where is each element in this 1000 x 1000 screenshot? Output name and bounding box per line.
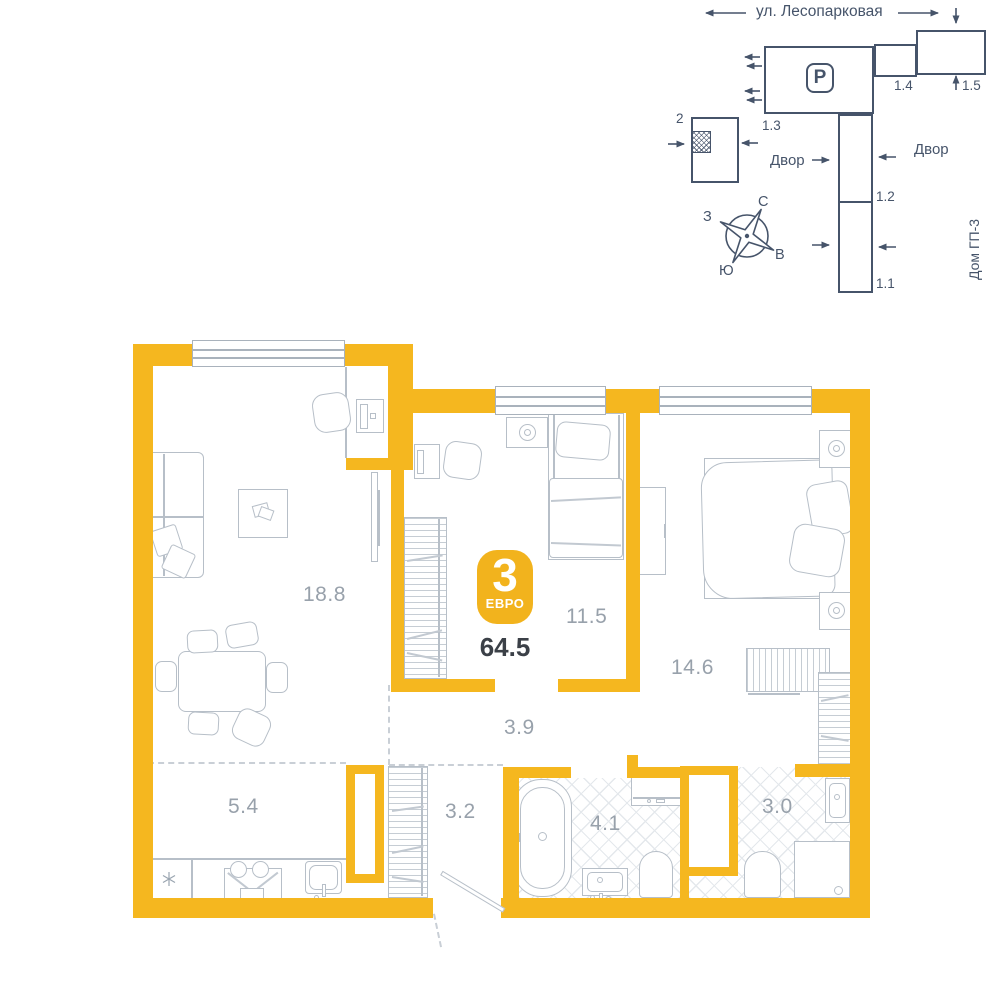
tv-panel [371, 472, 378, 562]
fridge-snowflake-icon [162, 872, 176, 886]
kitchen-faucet [322, 884, 326, 897]
wc-sink-bowl [829, 783, 846, 818]
pillow [787, 522, 847, 579]
room-label-bedroom1: 11.5 [566, 605, 607, 629]
window [659, 386, 812, 415]
wall [795, 764, 852, 777]
bathtub-drain [538, 832, 547, 841]
wall [133, 344, 153, 918]
tv-mount-line [378, 490, 380, 546]
shower-drain [834, 886, 843, 895]
wall [133, 898, 433, 918]
room-label-living: 18.8 [303, 583, 346, 607]
corridor-zone-dashed-line [388, 685, 390, 765]
toilet [639, 851, 673, 898]
lamp-icon [833, 445, 840, 452]
dining-chair [187, 711, 219, 736]
dining-chair [155, 661, 177, 692]
window-glass-line [660, 405, 811, 407]
apartment-area-value: 64.5 [474, 632, 536, 663]
stove-burner [252, 861, 269, 878]
dresser-handle [664, 524, 666, 538]
pillow [555, 421, 612, 462]
minimap-graphics [660, 0, 1000, 300]
dining-table [178, 651, 266, 712]
floorplan-page: 18.8 11.5 14.6 3.9 5.4 3.2 4.1 3.0 3 ЕВР… [0, 0, 1000, 1000]
wall [391, 470, 404, 691]
wall [501, 898, 870, 918]
blanket [549, 478, 623, 558]
bathroom-sink-bowl [587, 872, 623, 892]
dresser [639, 487, 666, 575]
badge-type-label: ЕВРО [477, 596, 533, 611]
wardrobe-bedroom2-side [818, 672, 852, 765]
kitchen-counter-divider [191, 858, 193, 898]
sink-drain [597, 877, 603, 883]
monitor [417, 450, 424, 474]
lamp-icon [524, 429, 531, 436]
room-label-kitchen: 5.4 [228, 795, 259, 819]
washing-machine-knob [647, 799, 651, 803]
room-label-bath: 4.1 [590, 812, 621, 836]
window [192, 340, 345, 367]
washing-machine-controls [656, 799, 665, 803]
desk-item [370, 413, 376, 419]
wall [391, 679, 495, 692]
wall [503, 767, 519, 898]
sofa-seat-line [147, 516, 203, 518]
room-label-hall: 3.2 [445, 800, 476, 824]
compass-icon [721, 210, 774, 263]
wall [627, 755, 638, 767]
toilet [744, 851, 781, 898]
wall [850, 389, 870, 918]
wardrobe-bench-line [748, 693, 800, 695]
window-glass-line [496, 405, 605, 407]
monitor [360, 404, 368, 429]
wall [503, 767, 571, 778]
window [495, 386, 606, 415]
room-label-bedroom2: 14.6 [671, 656, 714, 680]
entrance-door-leaf [440, 871, 505, 913]
room-label-corridor: 3.9 [504, 716, 535, 740]
dining-chair [266, 662, 288, 693]
window-glass-line [660, 396, 811, 398]
kitchen-zone-dashed-line [148, 762, 346, 764]
wall [558, 679, 636, 692]
dining-chair [186, 629, 218, 654]
window-glass-line [193, 349, 344, 351]
entrance-door-swing [433, 914, 442, 948]
lamp-icon [833, 607, 840, 614]
window-glass-line [496, 396, 605, 398]
window-glass-line [193, 357, 344, 359]
sink-drain [834, 794, 840, 800]
kitchen-counter-line [146, 858, 348, 860]
wall [626, 413, 640, 681]
kitchen-door-leaf [346, 765, 384, 883]
desk-chair [442, 440, 484, 482]
dining-chair [224, 620, 260, 649]
wall [346, 458, 392, 470]
utility-shaft [680, 766, 738, 876]
room-label-wc: 3.0 [762, 795, 793, 819]
wardrobe-rail-line [438, 519, 440, 677]
wardrobe-bedroom1 [404, 517, 447, 679]
desk-chair [310, 391, 352, 435]
apartment-badge: 3 ЕВРО [477, 550, 533, 624]
badge-rooms-count: 3 [477, 552, 533, 599]
wardrobe-rail-line [421, 768, 423, 896]
